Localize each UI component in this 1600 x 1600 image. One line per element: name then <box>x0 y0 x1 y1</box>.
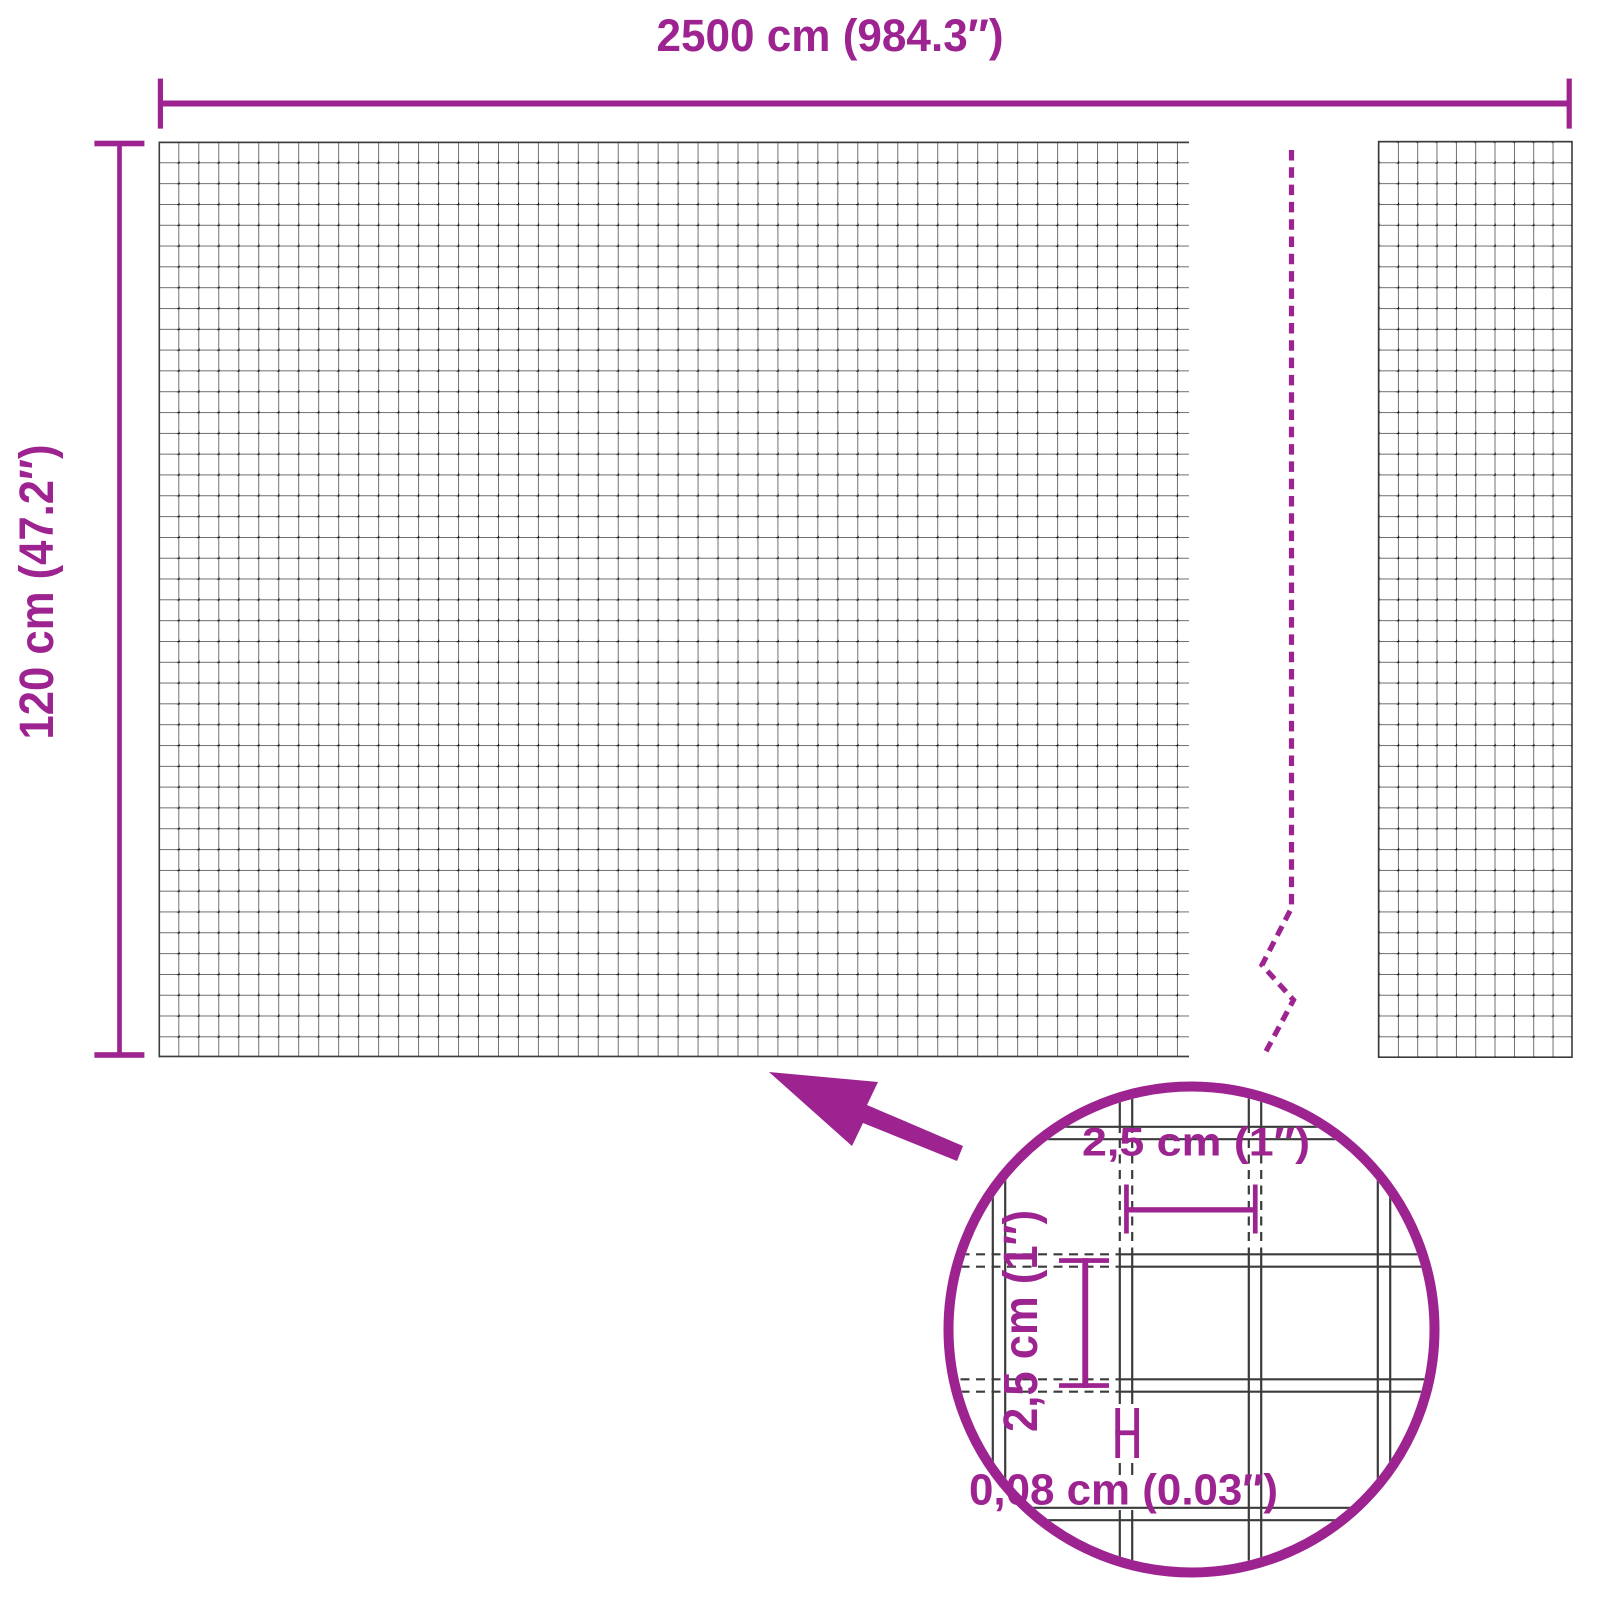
svg-text:2,5 cm (1″): 2,5 cm (1″) <box>995 1210 1048 1432</box>
svg-text:2,5 cm (1″): 2,5 cm (1″) <box>1082 1121 1310 1165</box>
svg-text:120 cm (47.2″): 120 cm (47.2″) <box>11 445 64 740</box>
svg-text:0,08 cm (0.03″): 0,08 cm (0.03″) <box>969 1467 1278 1515</box>
svg-text:2500 cm (984.3″): 2500 cm (984.3″) <box>657 10 1004 61</box>
